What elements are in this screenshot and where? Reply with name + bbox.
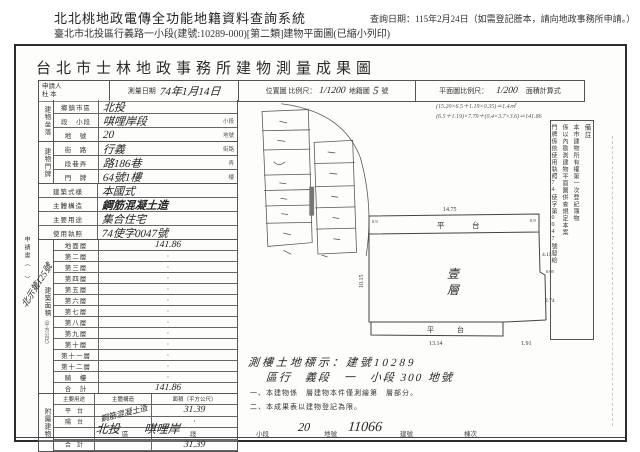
survey-date-cell: 測量日期 74年1月14日	[110, 81, 239, 101]
area-calc-handwriting: (15.20×6.5＋1.19×0.35)＝1.4㎡ (6.5＋1.19)×7.…	[436, 102, 621, 122]
location-scale-value: 1/1200	[319, 86, 346, 96]
remarks-stamp: 備註 本市建物所有權第一次登記簿物 係以內勘測建物平面圖併查規定本案 門牌係依使…	[550, 120, 594, 340]
form-row: 門 牌 64號1樓 樓	[54, 170, 237, 183]
row-label: 使用執照	[39, 226, 98, 239]
dimension-bottom-right: 1.91	[521, 341, 532, 347]
row-value: ·	[99, 263, 237, 272]
row-label: 地面層	[54, 240, 99, 250]
survey-sheet: 台北市士林地政事務所建物測量成果圖 申請人 杜 本 測量日期 74年1月14日 …	[16, 46, 625, 440]
row-label: 第五層	[54, 284, 99, 294]
form-row: 段巷弄 路186巷 弄	[54, 156, 237, 170]
annex-use: 平 台	[54, 405, 95, 416]
annex-area: 31.39	[152, 440, 238, 450]
query-date: 查詢日期：115年2月24日（如需登記謄本，請向地政事務所申請。）	[370, 12, 635, 25]
row-label: 第九層	[54, 328, 99, 338]
row-label: 建築式樣	[39, 184, 98, 197]
row-label: 鄉鎮市區	[54, 100, 99, 113]
form-row: 街 路 行義 街路	[54, 142, 237, 156]
row-label: 段巷弄	[54, 156, 99, 169]
plan-scale-label: 平面圖比例尺：	[439, 86, 488, 96]
land-description-line2: 區行 義段 一 小段 300 地號	[265, 369, 454, 385]
row-value: ·	[99, 285, 237, 294]
footer-district-value: 北投	[95, 420, 121, 437]
annex-area: 31.39	[152, 405, 238, 415]
row-value: 74使字0047號	[97, 225, 237, 241]
form-row: 段 小段 唭哩岸段 小段	[54, 114, 237, 128]
margin-label: 申請書（ ）	[22, 236, 31, 284]
scan-artifact	[612, 136, 613, 426]
door-section-label: 建物門牌	[39, 142, 54, 183]
row-label: 主體構造	[39, 198, 98, 211]
row-value: ·	[99, 362, 237, 371]
row-value: ·	[99, 329, 237, 338]
row-label: 第二層	[54, 251, 99, 261]
row-value: ·	[99, 373, 237, 382]
dimension-corner-right: 0.9	[530, 218, 536, 223]
location-scale-label: 位置圖 比例尺：	[266, 86, 317, 96]
row-suffix: 弄	[228, 159, 237, 167]
room-label: 層	[447, 283, 461, 297]
annex-use: 合 計	[54, 440, 95, 451]
row-label: 第三層	[54, 262, 99, 272]
row-suffix: 街路	[223, 145, 237, 153]
scanned-document: 台北市士林地政事務所建物測量成果圖 申請人 杜 本 測量日期 74年1月14日 …	[14, 44, 627, 442]
row-label: 第六層	[54, 295, 99, 305]
row-value: 唭哩岸段	[98, 113, 223, 129]
floor-area-section: 建築面積 （平方公尺） 地面層141.86 第二層· 第三層· 第四層· 第五層…	[39, 240, 237, 394]
land-description-line1: 測樓土地標示：建號10289	[247, 354, 417, 370]
row-label: 第十層	[54, 339, 99, 349]
stamp-line: 門牌係依使用執照74使字第0047號發給	[548, 124, 558, 336]
floor-plan: 14.75 0.9 0.9 平 台 10.15 壹 層 平 台 13.14 1.…	[357, 202, 557, 352]
row-value: ·	[99, 307, 237, 316]
row-value: ·	[99, 318, 237, 327]
applicant-cell: 申請人 杜 本	[39, 81, 110, 101]
row-suffix: 地號	[223, 131, 237, 139]
stamp-heading: 備註	[581, 124, 591, 336]
form-row: 地 號 20 地號	[54, 128, 237, 141]
row-value: ·	[99, 274, 237, 283]
applicant-label: 申請人	[42, 83, 106, 91]
floor-area-title: 建築面積	[41, 287, 51, 317]
cadastral-map-label: 地籍圖	[349, 86, 370, 96]
plan-scale-cell: 平面圖比例尺： 1/200 面積計算式	[416, 81, 584, 101]
dimension-corner-left: 0.9	[372, 219, 378, 224]
form-row: 主體構造 鋼筋混凝土造	[39, 198, 237, 212]
annex-col-area: 面積（平方公尺）	[152, 394, 237, 404]
dimension-left: 10.15	[359, 275, 365, 289]
row-value: ·	[99, 252, 237, 261]
footer-section-value: 唭哩岸	[143, 420, 181, 437]
annex-row: 合 計 31.39	[54, 440, 237, 452]
row-suffix: 樓	[228, 173, 237, 181]
row-label: 騎 樓	[54, 372, 99, 382]
row-label: 第七層	[54, 306, 99, 316]
area-calc-label: 面積計算式	[526, 86, 561, 96]
door-section: 建物門牌 街 路 行義 街路 段巷弄 路186巷 弄 門 牌 64號1樓	[39, 142, 237, 184]
annex-section: 附屬建物 主要用途 主體構造 面積（平方公尺） 平 台 31.39 陽 台	[39, 394, 237, 451]
row-suffix: 小段	[223, 117, 237, 125]
row-label: 第十二層	[54, 361, 99, 371]
footer-divider	[16, 437, 625, 438]
printed-note-2: 二、本成果表以建物登記為限。	[250, 402, 550, 412]
printed-note-1: 一、本建物係 層建物本件僅測繪第 層部分。	[250, 388, 550, 398]
row-label: 地 號	[54, 128, 99, 141]
calc-line: (15.20×6.5＋1.19×0.35)＝1.4㎡	[436, 102, 621, 112]
row-value: 141.86	[99, 383, 238, 393]
row-label: 第八層	[54, 317, 99, 327]
row-label: 第十一層	[54, 350, 99, 360]
dimension-top: 14.75	[443, 207, 457, 213]
annex-col-use: 主要用途	[54, 394, 95, 404]
stamp-line: 係以內勘測建物平面圖併查規定本案	[559, 124, 569, 336]
row-value: ·	[99, 340, 237, 349]
room-label: 壹	[447, 267, 461, 281]
document-title: 台北市士林地政事務所建物測量成果圖	[36, 57, 376, 78]
site-section-label: 建物坐落	[39, 100, 54, 141]
attributes-section: 建築式樣 本國式 主體構造 鋼筋混凝土造 主要用途 集合住宅 使用執照 74使字…	[39, 184, 237, 240]
survey-date-value: 74年1月14日	[159, 83, 221, 99]
form-row: 使用執照 74使字0047號	[39, 226, 237, 239]
applicant-value: 杜 本	[42, 91, 106, 99]
row-label: 合 計	[54, 383, 99, 393]
footer-parcel-value: 20	[297, 420, 310, 435]
form-row: 建築式樣 本國式	[39, 184, 237, 198]
subject-parcel-highlight	[309, 187, 314, 216]
cadastral-map-unit: 號	[381, 86, 388, 96]
survey-date-label: 測量日期	[128, 86, 156, 96]
stamp-line: 本市建物所有權第一次登記簿物	[570, 124, 580, 336]
form-row: 主要用途 集合住宅	[39, 212, 237, 226]
dimension-bottom: 13.14	[429, 341, 443, 347]
row-label: 門 牌	[54, 170, 99, 183]
row-value: 141.86	[99, 240, 238, 250]
building-form-table: 建物坐落 鄉鎮市區 北投 段 小段 唭哩岸段 小段 地 號 20	[38, 100, 238, 452]
cadastral-map-number: 5	[372, 85, 379, 97]
top-platform-label: 平 台	[437, 220, 490, 230]
row-label: 主要用途	[39, 212, 98, 225]
site-section: 建物坐落 鄉鎮市區 北投 段 小段 唭哩岸段 小段 地 號 20	[39, 100, 237, 142]
bottom-platform-label: 平 台	[427, 325, 472, 334]
annex-section-label: 附屬建物	[39, 394, 54, 451]
row-label: 街 路	[54, 142, 99, 155]
form-row: 鄉鎮市區 北投	[54, 100, 237, 114]
plan-scale-value: 1/200	[496, 86, 519, 96]
report-subtitle: 臺北市北投區行義路一小段(建號:10289-000)[第二類]建物平面圖(已縮小…	[54, 25, 390, 40]
row-label: 段 小段	[54, 114, 99, 127]
row-label: 第四層	[54, 273, 99, 283]
annex-use: 陽 台	[54, 417, 95, 428]
annex-structure	[95, 440, 152, 451]
floor-area-unit: （平方公尺）	[43, 317, 50, 347]
row-value: ·	[99, 296, 237, 305]
footer-building-number-value: 11066	[347, 420, 382, 436]
row-value: ·	[99, 351, 237, 360]
row-value: 20	[98, 129, 223, 141]
